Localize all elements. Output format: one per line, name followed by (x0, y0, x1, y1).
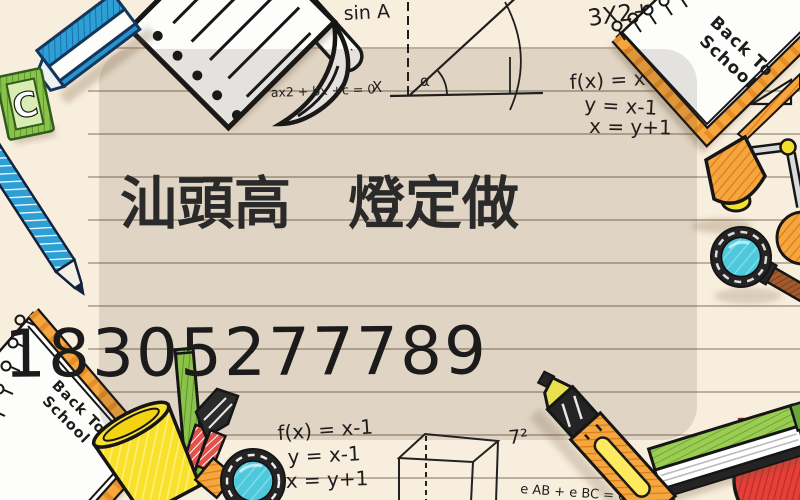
back-to-school-poster: sin A ax2 + bx +c = 0 X α 3X2+ f(x) = x-… (0, 0, 800, 500)
lamp-elbow (777, 212, 800, 264)
blue-pencil-doodle (0, 131, 94, 302)
pencil-cup-doodle (89, 348, 285, 500)
lamp-joint (781, 140, 796, 155)
tools-doodles-layer: C (0, 0, 800, 500)
marker-doodle (513, 362, 685, 500)
brush-bristles (196, 389, 238, 437)
